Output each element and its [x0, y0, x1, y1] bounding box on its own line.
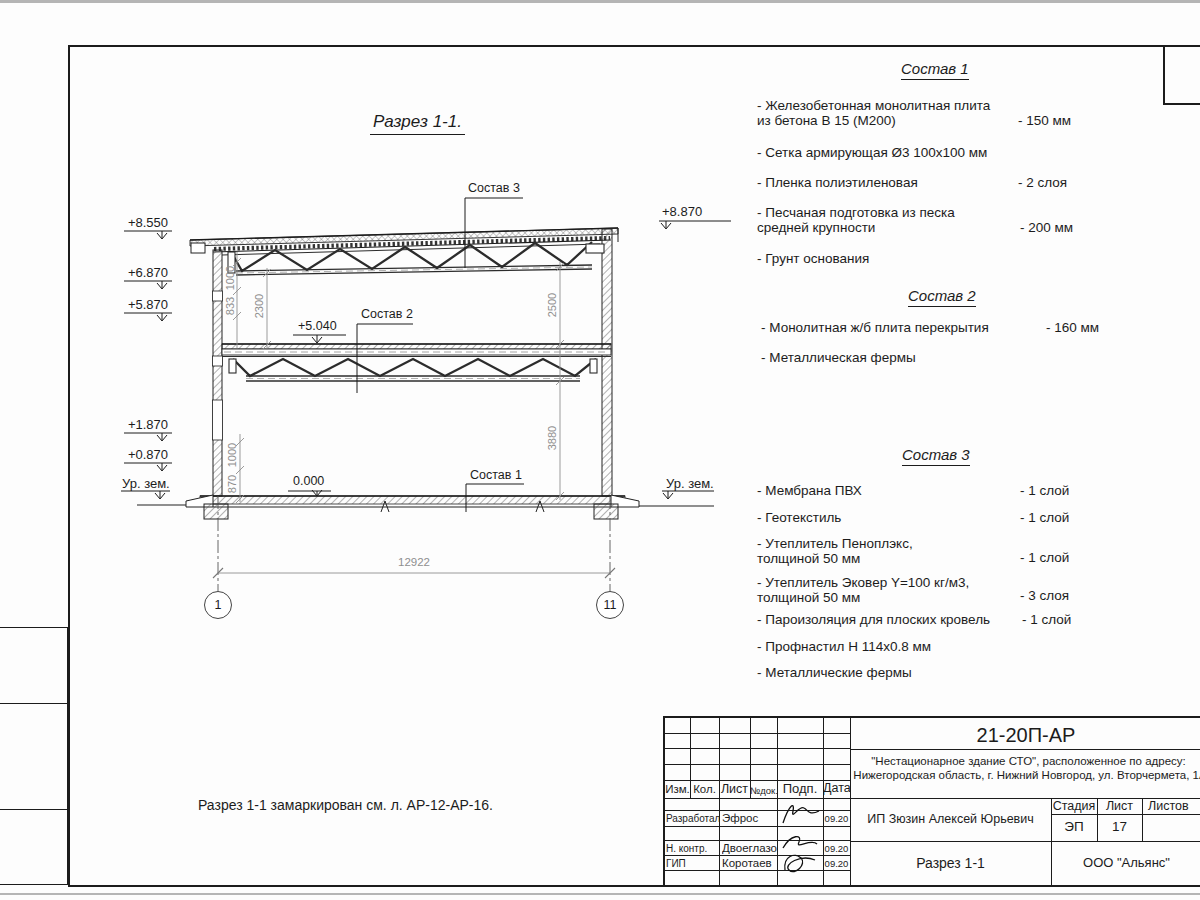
list-item-qty: - 150 мм — [1018, 113, 1071, 128]
foundation-right — [594, 495, 714, 519]
dim-870: 870 — [226, 464, 238, 504]
title-block: Изм. Кол. Лист №док. Подп. Дата Разработ… — [663, 716, 1200, 885]
list-item: - Пароизоляция для плоских кровель — [757, 612, 1047, 627]
list-item: - Утеплитель Пеноплэкс, толщиной 50 мм — [757, 536, 1027, 566]
right-wall — [602, 229, 612, 496]
col-kol: Кол. — [690, 783, 719, 795]
list-item: - Металлическая фермы — [761, 350, 1041, 365]
list-item-qty: - 1 слой — [1020, 483, 1069, 498]
list-item-qty: - 1 слой — [1022, 612, 1071, 627]
elevation-label: +8.870 — [662, 205, 702, 218]
section-title: Разрез 1-1. — [370, 112, 465, 135]
list-item: - Сетка армирующая Ø3 100x100 мм — [757, 145, 1047, 160]
list-item: - Грунт основания — [757, 251, 1027, 266]
floor-slab — [200, 496, 625, 512]
list-item-qty: - 160 мм — [1046, 320, 1099, 335]
list-item: - Пленка полиэтиленовая — [757, 175, 1027, 190]
col-data: Дата — [823, 781, 850, 795]
col-podp: Подп. — [777, 781, 823, 796]
row-name: Коротаев — [722, 857, 777, 869]
col-izm: Изм. — [665, 783, 690, 795]
composition-3-title: Состав 3 — [902, 446, 970, 466]
level-zero-label: 0.000 — [293, 475, 324, 488]
mid-truss — [229, 359, 597, 381]
dim-2300: 2300 — [253, 286, 265, 326]
list-item: - Монолитная ж/б плита перекрытия — [761, 320, 1041, 335]
dimension-chains — [233, 252, 564, 503]
dim-3880: 3880 — [546, 418, 558, 458]
sheet-title: Разрез 1-1 — [850, 855, 1051, 871]
level-mid-label: +5.040 — [298, 320, 337, 333]
project-name-line2: Нижегородская область, г. Нижний Новгоро… — [850, 769, 1200, 781]
callout-floor: Состав 1 — [470, 469, 522, 482]
list-item: - Геотекстиль — [757, 510, 1027, 525]
list-item-qty: - 1 слой — [1020, 550, 1069, 565]
row-role: Разработал — [666, 813, 719, 824]
list-item: - Утеплитель Эковер Y=100 кг/м3, толщино… — [757, 575, 1037, 605]
company-name: ООО "Альянс" — [1051, 855, 1200, 870]
ground-level-label: Ур. зем. — [122, 477, 170, 490]
list-item: - Мембрана ПВХ — [757, 483, 1027, 498]
client-name: ИП Зюзин Алексей Юрьевич — [850, 812, 1051, 826]
list-item-qty: - 1 слой — [1020, 510, 1069, 525]
row-date: 09.20 — [823, 843, 850, 854]
sheets-label: Листов — [1142, 799, 1200, 813]
elevation-label: +0.870 — [108, 448, 168, 461]
list-item: - Железобетонная монолитная плита из бет… — [757, 98, 1027, 128]
list-item-qty: - 2 слоя — [1018, 175, 1067, 190]
col-ndok: №док. — [750, 785, 777, 796]
row-role: Н. контр. — [666, 843, 719, 854]
dim-833: 833 — [224, 286, 236, 326]
composition-1-title: Состав 1 — [901, 60, 969, 80]
roof-truss — [222, 242, 604, 275]
dim-2500: 2500 — [546, 285, 558, 325]
doc-number: 21-20П-АР — [850, 724, 1200, 747]
left-wall — [213, 250, 223, 496]
mid-floor — [222, 344, 611, 357]
list-item: - Металлические фермы — [757, 665, 1027, 680]
elevation-label: +8.550 — [108, 216, 168, 229]
composition-2-title: Состав 2 — [908, 287, 976, 307]
drawing-note: Разрез 1-1 замаркирован см. л. АР-12-АР-… — [198, 797, 493, 813]
row-date: 09.20 — [823, 813, 850, 824]
col-list: Лист — [719, 782, 750, 796]
row-date: 09.20 — [823, 858, 850, 869]
signature-icon — [779, 799, 823, 829]
row-name: Эфрос — [722, 812, 777, 824]
stage-label: Стадия — [1051, 799, 1097, 813]
callout-mid: Состав 2 — [361, 308, 413, 321]
list-item: - Профнастил Н 114x0.8 мм — [757, 639, 1027, 654]
row-name: Двоеглазов — [722, 842, 778, 854]
stage-value: ЭП — [1051, 819, 1097, 834]
project-name-line1: "Нестационарное здание СТО", расположенн… — [855, 755, 1200, 767]
dim-span: 12922 — [388, 556, 440, 569]
axis-bubble-1: 1 — [204, 598, 232, 612]
elevation-label: +6.870 — [108, 266, 168, 279]
elevation-label: +1.870 — [108, 418, 168, 431]
drawing-sheet: { "drawing": { "title": "Разрез 1-1.", "… — [0, 0, 1200, 900]
sheet-number: 17 — [1097, 819, 1142, 834]
axis-bubble-11: 11 — [596, 598, 624, 612]
callout-roof: Состав 3 — [468, 182, 520, 195]
elevation-label: +5.870 — [108, 298, 168, 311]
list-item-qty: - 3 слоя — [1020, 588, 1069, 603]
ground-level-label: Ур. зем. — [666, 477, 714, 490]
list-item: - Песчаная подготовка из песка средней к… — [757, 205, 1027, 235]
list-item-qty: - 200 мм — [1020, 220, 1073, 235]
row-role: ГИП — [666, 858, 719, 869]
signature-icon — [777, 830, 825, 880]
sheet-label: Лист — [1097, 799, 1142, 813]
